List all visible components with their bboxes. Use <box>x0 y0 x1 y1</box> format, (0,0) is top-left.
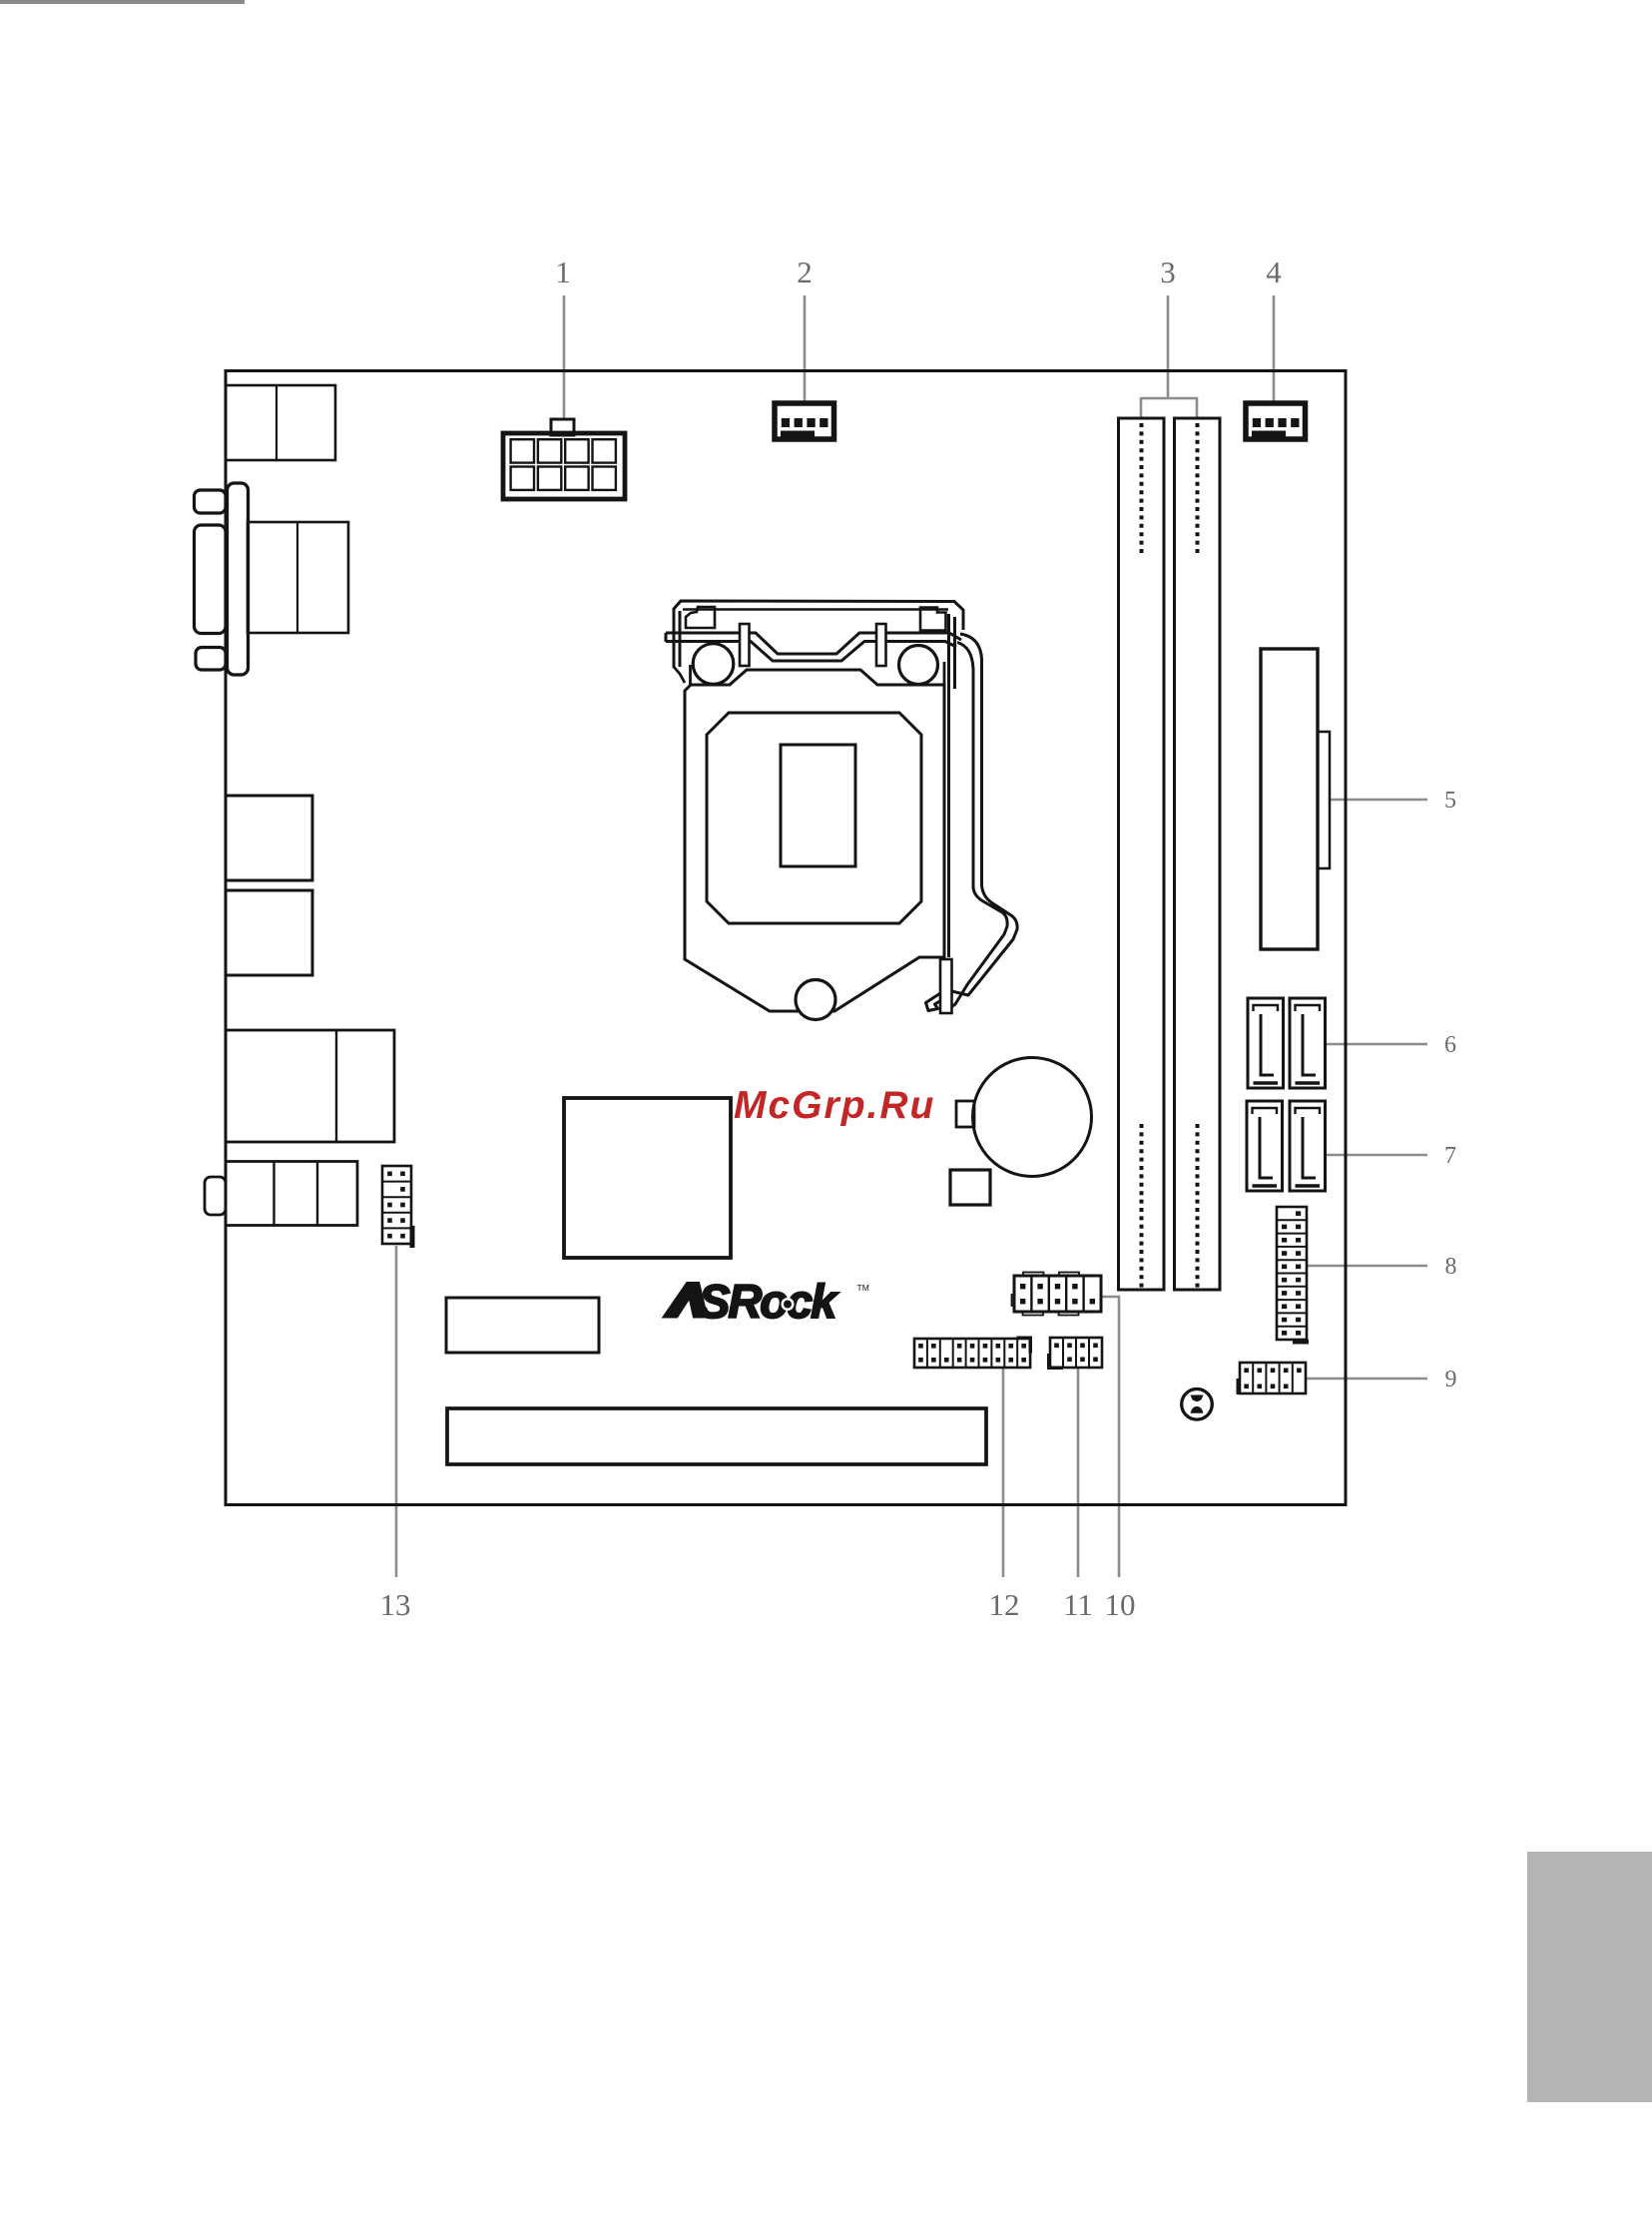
svg-text:2: 2 <box>797 255 813 289</box>
svg-text:TM: TM <box>857 1283 869 1293</box>
svg-text:4: 4 <box>1266 255 1282 289</box>
svg-text:1: 1 <box>555 255 571 289</box>
svg-text:11: 11 <box>1063 1587 1093 1622</box>
svg-text:12: 12 <box>989 1587 1020 1622</box>
svg-text:5: 5 <box>1444 788 1456 814</box>
svg-text:13: 13 <box>380 1587 411 1622</box>
svg-text:3: 3 <box>1160 255 1176 289</box>
svg-text:10: 10 <box>1105 1587 1136 1622</box>
svg-text:9: 9 <box>1445 1367 1457 1392</box>
svg-text:8: 8 <box>1445 1254 1457 1280</box>
svg-text:McGrp.Ru: McGrp.Ru <box>734 1084 935 1127</box>
svg-text:7: 7 <box>1444 1143 1456 1169</box>
svg-text:6: 6 <box>1444 1032 1456 1058</box>
svg-text:SRock: SRock <box>699 1275 839 1328</box>
